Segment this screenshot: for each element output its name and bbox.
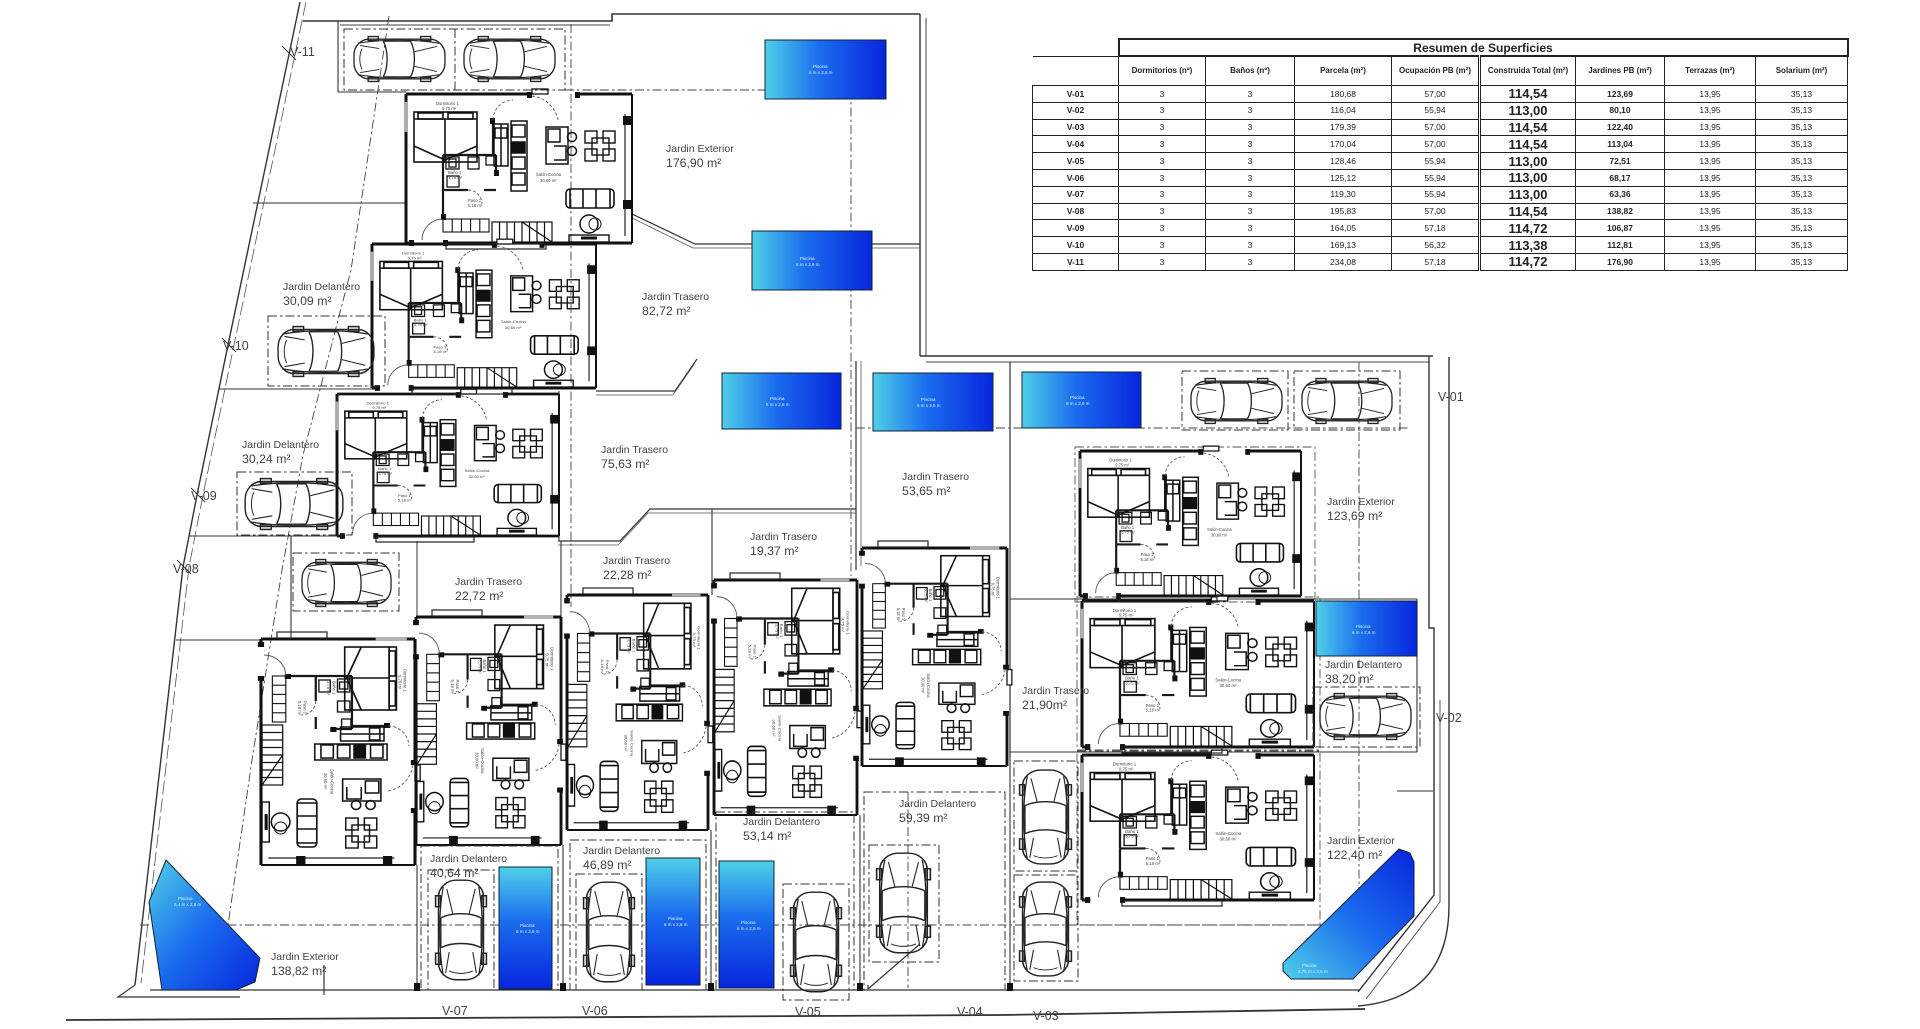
- svg-text:Jardin Delantero: Jardin Delantero: [899, 798, 976, 810]
- svg-text:Jardin Trasero: Jardin Trasero: [603, 555, 670, 567]
- svg-text:46,89 m²: 46,89 m²: [583, 858, 632, 872]
- svg-text:6 m x 2,6 m: 6 m x 2,6 m: [737, 926, 761, 931]
- svg-text:8,75 m x 2,6 m: 8,75 m x 2,6 m: [1298, 969, 1328, 974]
- svg-text:Jardin Trasero: Jardin Trasero: [1022, 685, 1089, 697]
- svg-text:53,14 m²: 53,14 m²: [743, 829, 792, 843]
- svg-text:V-05: V-05: [795, 1005, 821, 1019]
- svg-text:122,40 m²: 122,40 m²: [1327, 848, 1382, 862]
- svg-text:Jardin Delantero: Jardin Delantero: [743, 816, 820, 828]
- svg-text:V-09: V-09: [191, 489, 217, 503]
- svg-text:22,72 m²: 22,72 m²: [455, 589, 504, 603]
- svg-text:Piscina: Piscina: [770, 396, 785, 401]
- svg-text:Piscina: Piscina: [178, 896, 193, 901]
- svg-text:6 m x 2,6 m: 6 m x 2,6 m: [1352, 630, 1376, 635]
- svg-text:V-11: V-11: [290, 45, 315, 59]
- svg-text:Jardin Trasero: Jardin Trasero: [750, 531, 817, 543]
- svg-text:6 m x 2,6 m: 6 m x 2,6 m: [664, 922, 688, 927]
- svg-text:Jardin Trasero: Jardin Trasero: [902, 471, 969, 483]
- svg-text:Jardin Delantero: Jardin Delantero: [583, 845, 660, 857]
- svg-text:30,09 m²: 30,09 m²: [283, 294, 332, 308]
- svg-text:Jardin Delantero: Jardin Delantero: [1325, 659, 1402, 671]
- svg-text:30,24 m²: 30,24 m²: [242, 452, 291, 466]
- svg-text:V-08: V-08: [173, 562, 199, 576]
- svg-text:123,69 m²: 123,69 m²: [1327, 509, 1382, 523]
- svg-text:6 m x 2,6 m: 6 m x 2,6 m: [766, 402, 790, 407]
- svg-text:Piscina: Piscina: [1356, 624, 1371, 629]
- svg-text:V-10: V-10: [223, 339, 249, 353]
- svg-text:176,90 m²: 176,90 m²: [666, 156, 721, 170]
- svg-text:Piscina: Piscina: [520, 923, 535, 928]
- svg-text:Piscina: Piscina: [800, 256, 815, 261]
- svg-text:6,4 m x 2,6 m: 6,4 m x 2,6 m: [174, 902, 202, 907]
- svg-text:Piscina: Piscina: [741, 920, 756, 925]
- svg-text:Piscina: Piscina: [1070, 395, 1085, 400]
- svg-text:53,65 m²: 53,65 m²: [902, 484, 951, 498]
- svg-text:6 m x 2,6 m: 6 m x 2,6 m: [917, 403, 941, 408]
- svg-text:6 m x 2,6 m: 6 m x 2,6 m: [809, 70, 833, 75]
- svg-text:Jardin Trasero: Jardin Trasero: [455, 576, 522, 588]
- svg-text:75,63 m²: 75,63 m²: [601, 457, 650, 471]
- svg-text:Jardin Exterior: Jardin Exterior: [666, 143, 734, 155]
- svg-text:V-06: V-06: [582, 1004, 608, 1018]
- svg-text:Jardin Delantero: Jardin Delantero: [283, 281, 360, 293]
- svg-text:22,28 m²: 22,28 m²: [603, 568, 652, 582]
- svg-text:Jardin Trasero: Jardin Trasero: [601, 444, 668, 456]
- svg-text:V-02: V-02: [1436, 711, 1462, 725]
- svg-text:V-04: V-04: [957, 1005, 983, 1019]
- svg-text:59,39 m²: 59,39 m²: [899, 811, 948, 825]
- svg-text:40,64 m²: 40,64 m²: [430, 866, 479, 880]
- svg-text:138,82 m²: 138,82 m²: [271, 964, 326, 978]
- svg-text:82,72 m²: 82,72 m²: [642, 304, 691, 318]
- svg-text:Piscina: Piscina: [813, 64, 828, 69]
- svg-text:Jardin Exterior: Jardin Exterior: [1327, 496, 1395, 508]
- svg-text:6 m x 2,6 m: 6 m x 2,6 m: [1066, 401, 1090, 406]
- svg-text:Jardin Delantero: Jardin Delantero: [242, 439, 319, 451]
- svg-text:21,90m²: 21,90m²: [1022, 698, 1067, 712]
- svg-text:Piscina: Piscina: [668, 916, 683, 921]
- svg-text:Piscina: Piscina: [921, 397, 936, 402]
- svg-text:6 m x 2,6 m: 6 m x 2,6 m: [796, 262, 820, 267]
- svg-text:38,20 m²: 38,20 m²: [1325, 672, 1374, 686]
- svg-text:V-01: V-01: [1438, 390, 1464, 404]
- svg-text:6 m x 2,6 m: 6 m x 2,6 m: [516, 929, 540, 934]
- svg-text:V-03: V-03: [1033, 1009, 1059, 1023]
- svg-text:Piscina: Piscina: [1302, 963, 1317, 968]
- svg-text:V-07: V-07: [442, 1004, 468, 1018]
- svg-text:19,37 m²: 19,37 m²: [750, 544, 799, 558]
- svg-text:Jardin Delantero: Jardin Delantero: [430, 853, 507, 865]
- svg-text:Jardin Exterior: Jardin Exterior: [1327, 835, 1395, 847]
- svg-text:Jardin Exterior: Jardin Exterior: [271, 951, 339, 963]
- svg-text:Jardin Trasero: Jardin Trasero: [642, 291, 709, 303]
